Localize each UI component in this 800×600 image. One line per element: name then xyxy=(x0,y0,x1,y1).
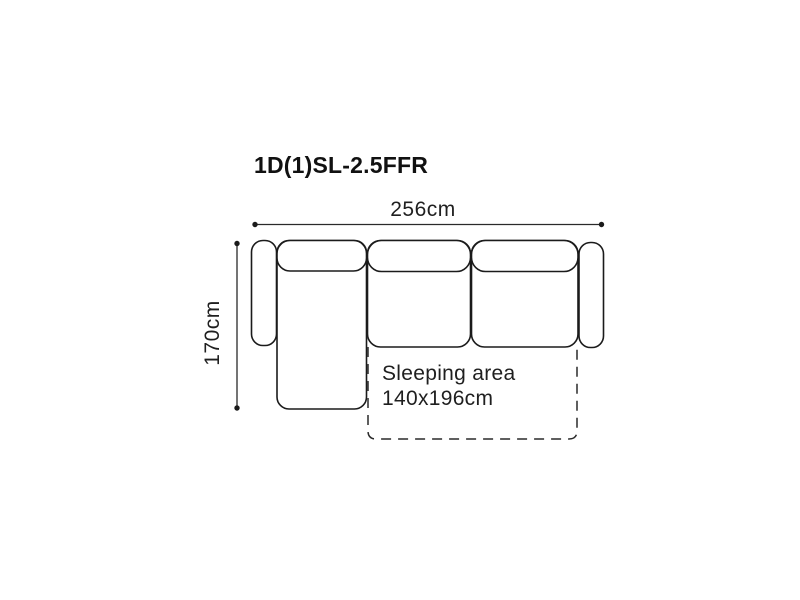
chaise-back-cushion xyxy=(277,241,367,272)
sleeping-area-label-line1: Sleeping area xyxy=(382,362,516,385)
right-armrest xyxy=(579,243,604,348)
height-dimension-endpoint-top xyxy=(234,241,239,246)
height-dimension-endpoint-bottom xyxy=(234,405,239,410)
width-dimension xyxy=(252,222,604,227)
sofa-dimension-page: 1D(1)SL-2.5FFR 256cm 170cm Sleeping area… xyxy=(0,0,800,600)
height-dimension xyxy=(234,241,239,411)
product-title: 1D(1)SL-2.5FFR xyxy=(254,152,428,178)
seat-1-back-cushion xyxy=(368,241,471,272)
width-dimension-endpoint-right xyxy=(599,222,604,227)
seat-2-back-cushion xyxy=(472,241,579,272)
width-dimension-label: 256cm xyxy=(390,198,456,221)
sleeping-area-label-line2: 140x196cm xyxy=(382,387,493,410)
sofa-diagram: 1D(1)SL-2.5FFR 256cm 170cm Sleeping area… xyxy=(0,0,800,600)
height-dimension-label: 170cm xyxy=(201,300,224,366)
width-dimension-endpoint-left xyxy=(252,222,257,227)
left-armrest xyxy=(252,241,277,346)
